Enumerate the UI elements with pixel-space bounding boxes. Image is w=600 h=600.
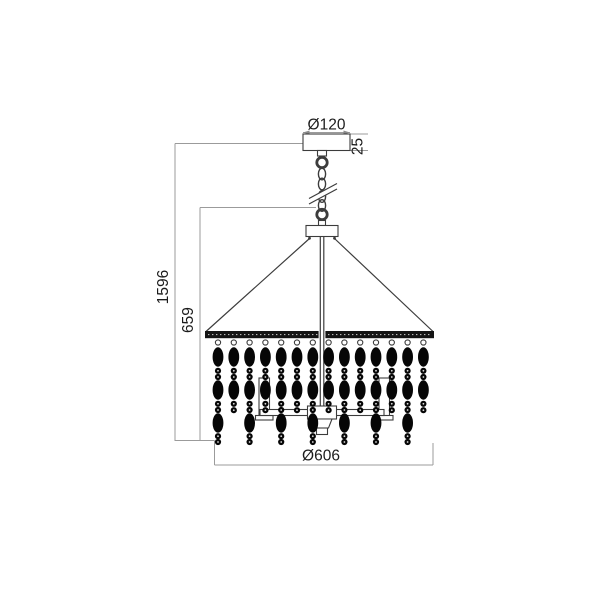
- suspension-wire-right: [335, 239, 434, 332]
- dim-label-overall-height: 1596: [155, 270, 172, 304]
- bead-strand-long: [402, 340, 413, 445]
- bead-strand-long: [244, 340, 255, 445]
- technical-drawing: Ø120 25 1596 659 Ø606: [0, 0, 600, 600]
- ring-bar: [205, 330, 434, 338]
- bead-strand-long: [213, 340, 224, 445]
- chain-group: [306, 157, 338, 239]
- dim-label-body-height: 659: [180, 307, 197, 333]
- chandelier-diagram-svg: Ø120 25 1596 659 Ø606: [0, 0, 600, 600]
- chain-ring-top: [317, 157, 327, 167]
- bead-strand-short: [323, 340, 334, 413]
- bead-strand-long: [307, 340, 318, 445]
- bead-strand-short: [418, 340, 429, 413]
- sleeve-base-left: [256, 416, 274, 421]
- bead-strand-short: [292, 340, 303, 413]
- ceiling-canopy: [303, 134, 350, 151]
- center-finial: [317, 428, 328, 435]
- center-rod: [320, 237, 324, 406]
- bead-strand-short: [355, 340, 366, 413]
- canopy-connector: [318, 151, 327, 157]
- dim-label-body-diameter: Ø606: [302, 448, 340, 465]
- dim-label-canopy-diameter: Ø120: [308, 117, 346, 134]
- canopy-group: [303, 134, 350, 156]
- suspension-wire-left: [206, 239, 310, 332]
- hub-collar: [306, 226, 338, 237]
- bead-strand-short: [228, 340, 239, 413]
- dim-label-canopy-height: 25: [350, 138, 367, 155]
- bead-strand-long: [339, 340, 350, 445]
- hub-neck: [319, 221, 326, 226]
- bead-strand-long: [276, 340, 287, 445]
- bead-strand-long: [371, 340, 382, 445]
- suspension-wires: [206, 239, 433, 332]
